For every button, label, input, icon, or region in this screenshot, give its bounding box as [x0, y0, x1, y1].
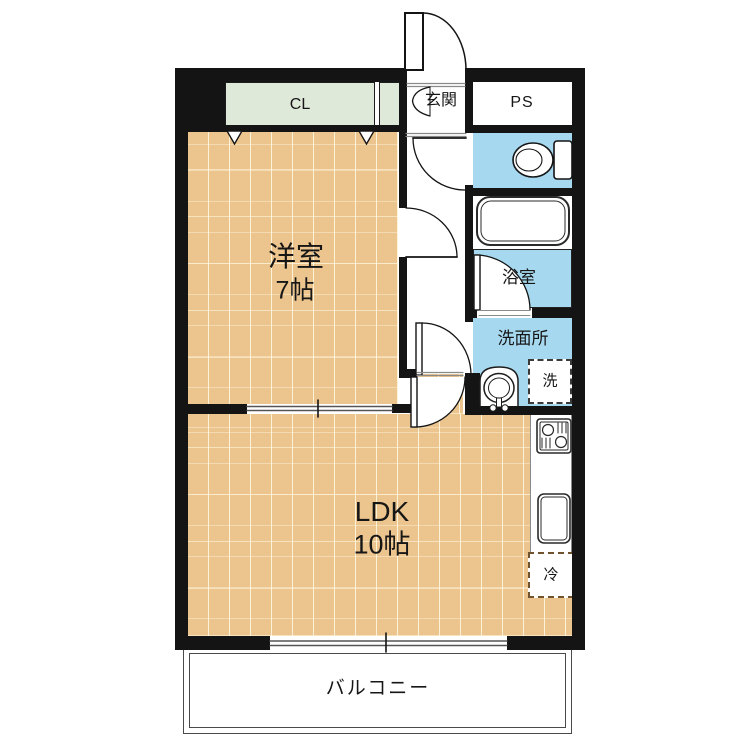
bathroom-label: 浴室 — [502, 268, 536, 288]
balcony-window-icon — [270, 633, 507, 652]
entrance-step-line — [406, 134, 466, 137]
kitchen-sink-icon — [538, 494, 570, 543]
fridge-label: 冷 — [543, 566, 558, 583]
washer-label: 洗 — [542, 372, 557, 389]
toilet-icon — [513, 141, 572, 179]
balcony-label: バルコニー — [326, 678, 431, 700]
ldk-door-icon — [411, 373, 465, 428]
ldk-name-label: LDK — [355, 496, 409, 528]
sliding-partition-icon — [247, 400, 392, 417]
western-room-door-icon — [406, 208, 457, 257]
bathtub-icon — [477, 197, 569, 245]
entrance-label: 玄関 — [425, 92, 457, 110]
closet-label: CL — [290, 96, 310, 114]
western-room-size-label: 7帖 — [276, 277, 315, 306]
washroom-door-icon — [416, 323, 471, 375]
western-room-name-label: 洋室 — [268, 241, 324, 273]
washroom-label: 洗面所 — [498, 329, 549, 349]
floor-plan: CL 玄関 PS 洋室 7帖 LDK 10帖 浴室 洗面所 洗 冷 バルコニー — [0, 0, 750, 750]
closet-pivot-icons — [227, 131, 374, 144]
washbasin-icon — [480, 367, 518, 411]
pipe-space-label: PS — [510, 94, 533, 112]
toilet-door-icon — [413, 138, 466, 190]
ldk-size-label: 10帖 — [353, 529, 410, 560]
stove-icon — [537, 419, 571, 453]
fixtures-overlay — [0, 0, 750, 750]
